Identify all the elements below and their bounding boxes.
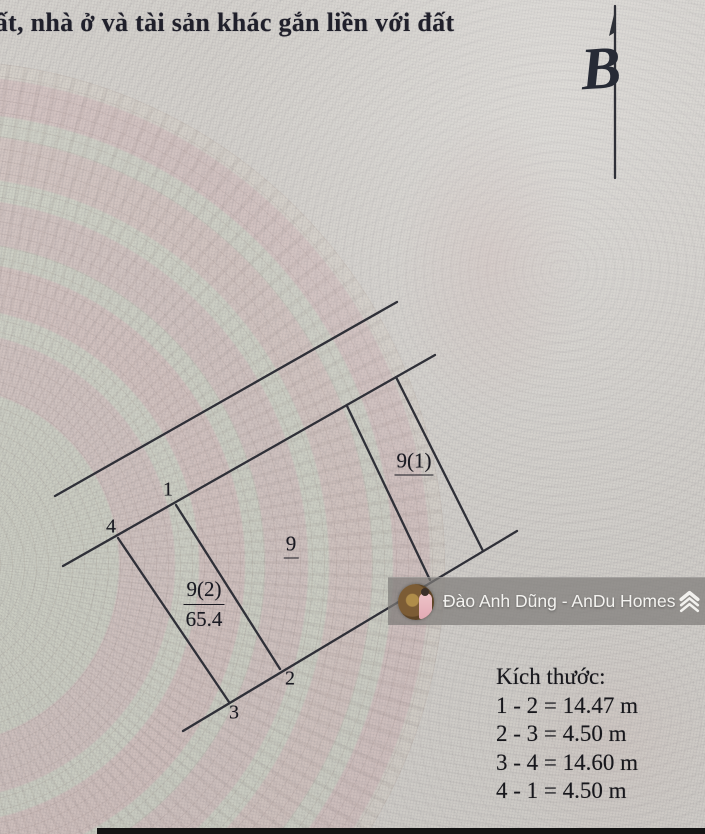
parcel-9-2-group: 9(2) 65.4	[184, 577, 225, 632]
avatar-person-head	[421, 588, 429, 596]
parcel-label-9-1: 9(1)	[395, 449, 434, 476]
edge-parcel9-right	[347, 406, 430, 580]
brand-logo-icon	[676, 588, 703, 615]
watermark-text: Đào Anh Dũng - AnDu Homes	[443, 591, 676, 612]
watermark-bar: Đào Anh Dũng - AnDu Homes	[388, 577, 705, 625]
avatar-person	[419, 593, 432, 619]
dimensions-block: Kích thước: 1 - 2 = 14.47 m 2 - 3 = 4.50…	[496, 663, 638, 806]
boundary-line-top	[55, 302, 397, 496]
vertex-label-1: 1	[163, 479, 173, 502]
dimensions-title: Kích thước:	[496, 663, 638, 692]
parcel-label-9: 9	[284, 532, 299, 559]
vertex-label-3: 3	[229, 702, 239, 725]
dimension-line-2-3: 2 - 3 = 4.50 m	[496, 720, 638, 749]
parcel-area-9-2: 65.4	[184, 607, 225, 632]
certificate-photo: đất, nhà ở và tài sản khác gắn liền với …	[0, 0, 705, 834]
north-arrowhead-icon	[609, 8, 616, 36]
vertex-label-4: 4	[106, 516, 116, 539]
dimension-line-3-4: 3 - 4 = 14.60 m	[496, 749, 638, 778]
dimension-line-1-2: 1 - 2 = 14.47 m	[496, 692, 638, 721]
dimension-line-4-1: 4 - 1 = 4.50 m	[496, 777, 638, 806]
parcel-label-9-2: 9(2)	[184, 577, 225, 605]
north-label: B	[579, 33, 624, 105]
vertex-label-2: 2	[285, 668, 295, 691]
watermark-avatar	[398, 584, 434, 620]
bottom-black-bar	[97, 828, 705, 834]
